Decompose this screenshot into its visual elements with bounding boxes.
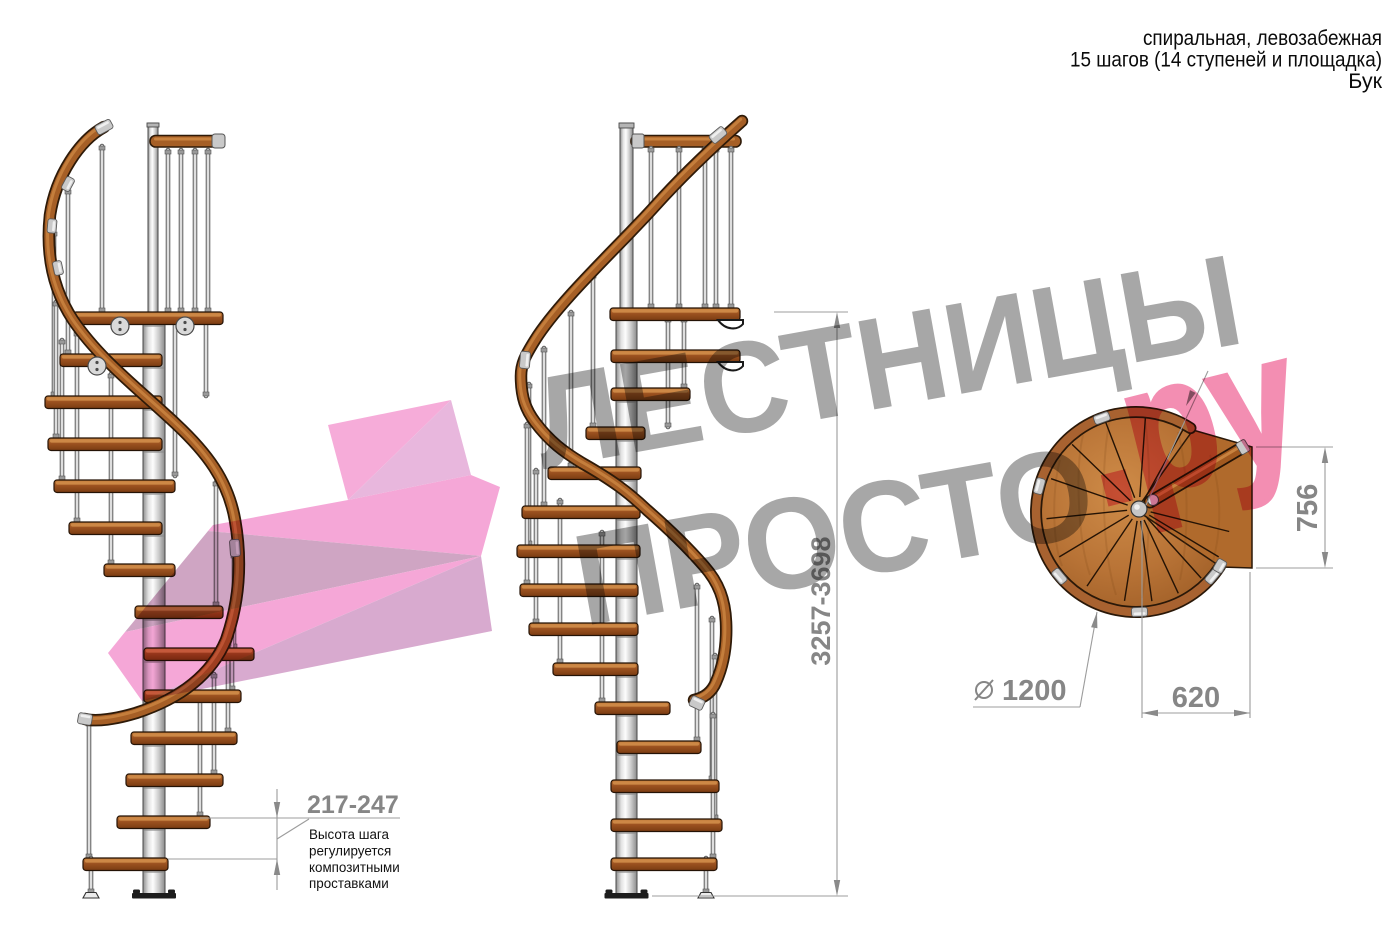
svg-text:217-247: 217-247 xyxy=(307,791,399,819)
svg-text:620: 620 xyxy=(1172,682,1220,714)
svg-text:15 шагов (14 ступеней и площад: 15 шагов (14 ступеней и площадка) xyxy=(1070,48,1382,72)
svg-text:спиральная, левозабежная: спиральная, левозабежная xyxy=(1143,26,1382,50)
svg-text:Высота шагарегулируетсякомпози: Высота шагарегулируетсякомпозитнымипрост… xyxy=(309,827,400,891)
svg-text:1200: 1200 xyxy=(1002,675,1067,707)
svg-text:Бук: Бук xyxy=(1348,69,1382,93)
